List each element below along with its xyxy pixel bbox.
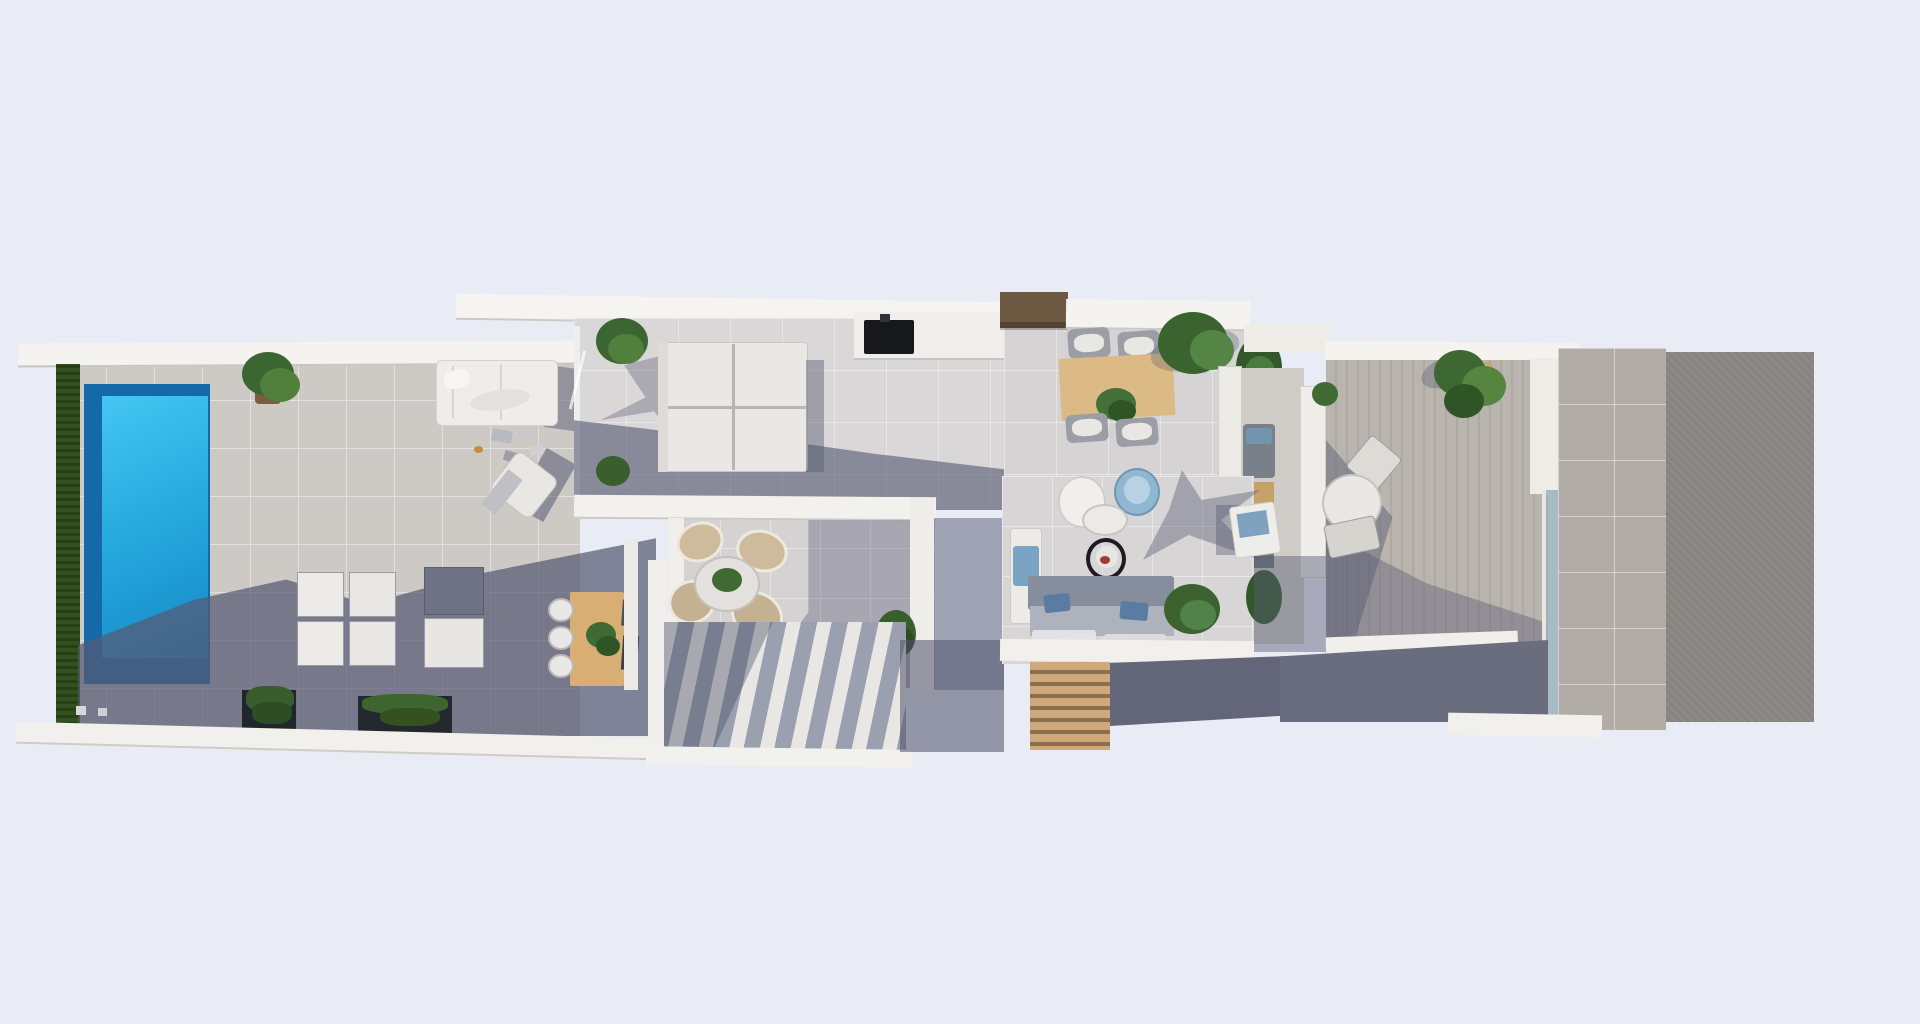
terrace-dining-chair-2	[548, 626, 574, 650]
corridor-utility-blue-top	[1246, 428, 1272, 444]
sun-lounger-3	[297, 621, 344, 666]
sun-lounger-2	[349, 572, 396, 617]
sun-lounger-shaded	[424, 567, 484, 615]
entrance-canopy-shade	[1000, 322, 1068, 330]
terrace-dining-chair-3	[548, 654, 574, 678]
gray-concrete-slab	[1666, 352, 1814, 722]
sun-lounger-4	[349, 621, 396, 666]
gray-sofa-pillow-2	[1119, 601, 1148, 621]
between-rooms-shadow	[934, 518, 1004, 690]
living-corner-plant-b	[608, 334, 644, 364]
gray-sofa-pillow-1	[1043, 593, 1071, 614]
modular-sofa-seam-horizontal	[660, 406, 806, 409]
scatter-orange-item	[474, 446, 483, 453]
sun-lounger-lit	[424, 618, 484, 668]
corridor-bottom-shadow	[1254, 556, 1330, 652]
nook-divider-wall	[624, 540, 638, 690]
bottom-right-edge-wall	[1448, 713, 1602, 738]
nook-plant-1b	[1180, 600, 1216, 630]
round-chair-blue-cushion	[1124, 476, 1150, 504]
terrace-dining-chair-1	[548, 598, 574, 622]
corridor-right-wall	[1300, 386, 1326, 578]
sun-lounger-1	[297, 572, 344, 617]
kitchen-cooktop	[864, 320, 914, 354]
lower-wall-band	[574, 495, 936, 522]
modular-sofa-backrest	[658, 342, 668, 472]
pool-ladder-step-2	[98, 708, 107, 716]
stairs-bottom-wall	[646, 746, 912, 768]
planter-small-foliage-b	[252, 702, 292, 724]
wire-ring-red-item	[1100, 556, 1110, 564]
nook-side-table	[1082, 504, 1128, 536]
modular-sofa-side-shadow	[806, 360, 824, 472]
right-lower-patio-shadow	[1280, 640, 1548, 722]
round-table-plant	[712, 568, 742, 592]
terrace-table-plant-b	[596, 636, 620, 656]
planter-long-foliage-b	[380, 708, 440, 726]
pool-ladder-step-1	[76, 706, 86, 715]
poolside-plant-foliage-b	[260, 368, 300, 402]
deck-plant-foliage-c	[1444, 384, 1484, 418]
stone-paved-strip	[1558, 348, 1666, 730]
entry-plant-large-b	[1190, 330, 1234, 370]
right-terrace-wall-plant	[1312, 382, 1338, 406]
living-floor-plant	[596, 456, 630, 486]
wooden-garden-steps	[1030, 662, 1110, 750]
kitchen-hood-knob	[880, 314, 890, 322]
lower-ground-shadow	[1110, 656, 1288, 726]
terrace-corner-wall-block	[1244, 324, 1330, 352]
scene	[0, 0, 1920, 1024]
boundary-hedge	[56, 364, 80, 736]
nook-white-chair-towel	[1236, 510, 1269, 538]
